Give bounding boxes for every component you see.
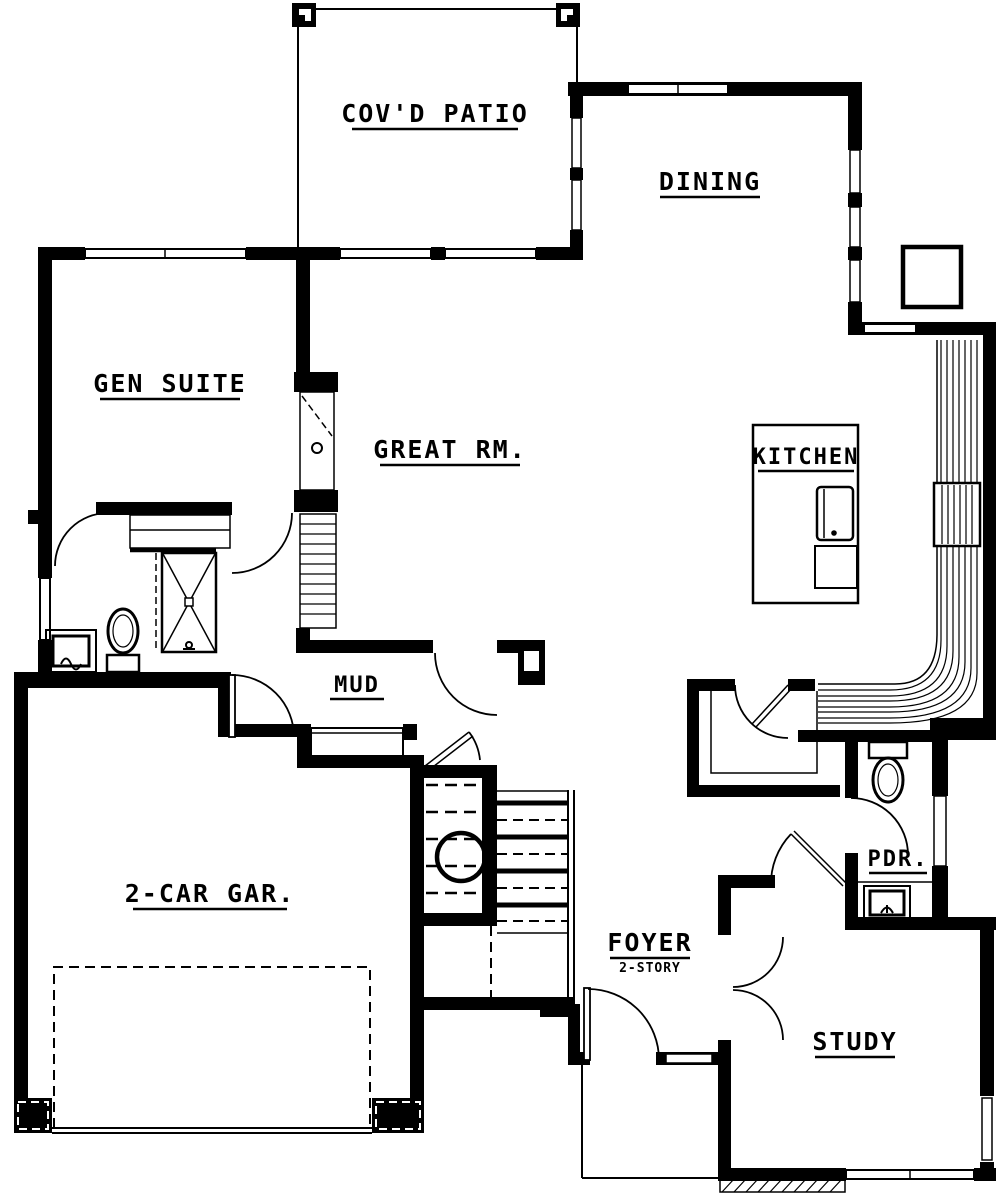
window xyxy=(445,249,536,258)
door-leaf xyxy=(752,685,792,727)
closet-shelf xyxy=(130,515,230,548)
window xyxy=(572,180,581,230)
label-dining: DINING xyxy=(659,167,761,196)
dining-walls xyxy=(568,82,961,324)
vanity-sink-icon xyxy=(46,630,96,672)
door-swing xyxy=(469,732,480,760)
window xyxy=(982,1098,992,1160)
french-door-swing xyxy=(733,990,783,1040)
window xyxy=(666,1054,712,1063)
powder-room-structure xyxy=(845,740,996,930)
door-leaf xyxy=(425,732,473,770)
window xyxy=(934,796,946,866)
label-mud: MUD xyxy=(334,673,380,698)
label-powder: PDR. xyxy=(868,847,929,872)
floor-plan-sheet: COV'D PATIO DINING GEN SUITE GREAT RM. K… xyxy=(0,0,1000,1194)
window xyxy=(850,150,860,193)
label-study: STUDY xyxy=(812,1027,897,1056)
stair-treads xyxy=(497,791,568,933)
window xyxy=(850,207,860,247)
door-swing xyxy=(588,989,659,1060)
window xyxy=(864,324,916,333)
appliance-icon xyxy=(934,483,980,546)
mud-bench-icon xyxy=(311,728,403,757)
room-labels: COV'D PATIO DINING GEN SUITE GREAT RM. K… xyxy=(93,99,928,1057)
toilet-icon xyxy=(107,609,139,672)
gen-suite-bath xyxy=(46,502,292,672)
overhead-door-track xyxy=(54,967,370,1128)
floor-plan-canvas: COV'D PATIO DINING GEN SUITE GREAT RM. K… xyxy=(0,0,1000,1194)
label-foyer: FOYER xyxy=(607,928,692,957)
door-leaf xyxy=(229,675,235,737)
door-swing xyxy=(55,513,108,566)
foyer-structure xyxy=(540,988,718,1178)
door-leaf xyxy=(791,831,846,886)
french-door-swing xyxy=(733,937,783,987)
door-swing xyxy=(232,513,292,573)
label-covd-patio: COV'D PATIO xyxy=(341,99,529,128)
label-kitchen: KITCHEN xyxy=(753,445,860,470)
fireplace-icon xyxy=(294,372,338,512)
built-in-shelves-icon xyxy=(300,514,336,628)
stair-landing xyxy=(426,785,485,893)
pantry-structure xyxy=(687,679,840,797)
window xyxy=(340,249,431,258)
label-gen-suite: GEN SUITE xyxy=(93,369,246,398)
powder-sink-icon xyxy=(864,886,910,920)
front-door-icon xyxy=(584,988,590,1060)
door-swing xyxy=(435,653,497,715)
kitchen-sink-icon xyxy=(817,487,853,540)
shower-icon xyxy=(162,553,216,652)
label-foyer-sub: 2-STORY xyxy=(619,961,681,976)
island-cabinet-icon xyxy=(815,546,857,588)
porch-edge xyxy=(582,1065,718,1178)
window xyxy=(850,260,860,302)
label-great-room: GREAT RM. xyxy=(373,435,526,464)
garage-door-icon xyxy=(52,1128,372,1133)
label-garage: 2-CAR GAR. xyxy=(125,879,296,908)
great-room-walls xyxy=(294,253,545,715)
powder-toilet-icon xyxy=(869,742,907,802)
dining-cabinet-icon xyxy=(903,247,961,307)
window xyxy=(572,118,581,168)
newel-circle-icon xyxy=(437,833,485,881)
stairs-structure xyxy=(410,765,575,1010)
